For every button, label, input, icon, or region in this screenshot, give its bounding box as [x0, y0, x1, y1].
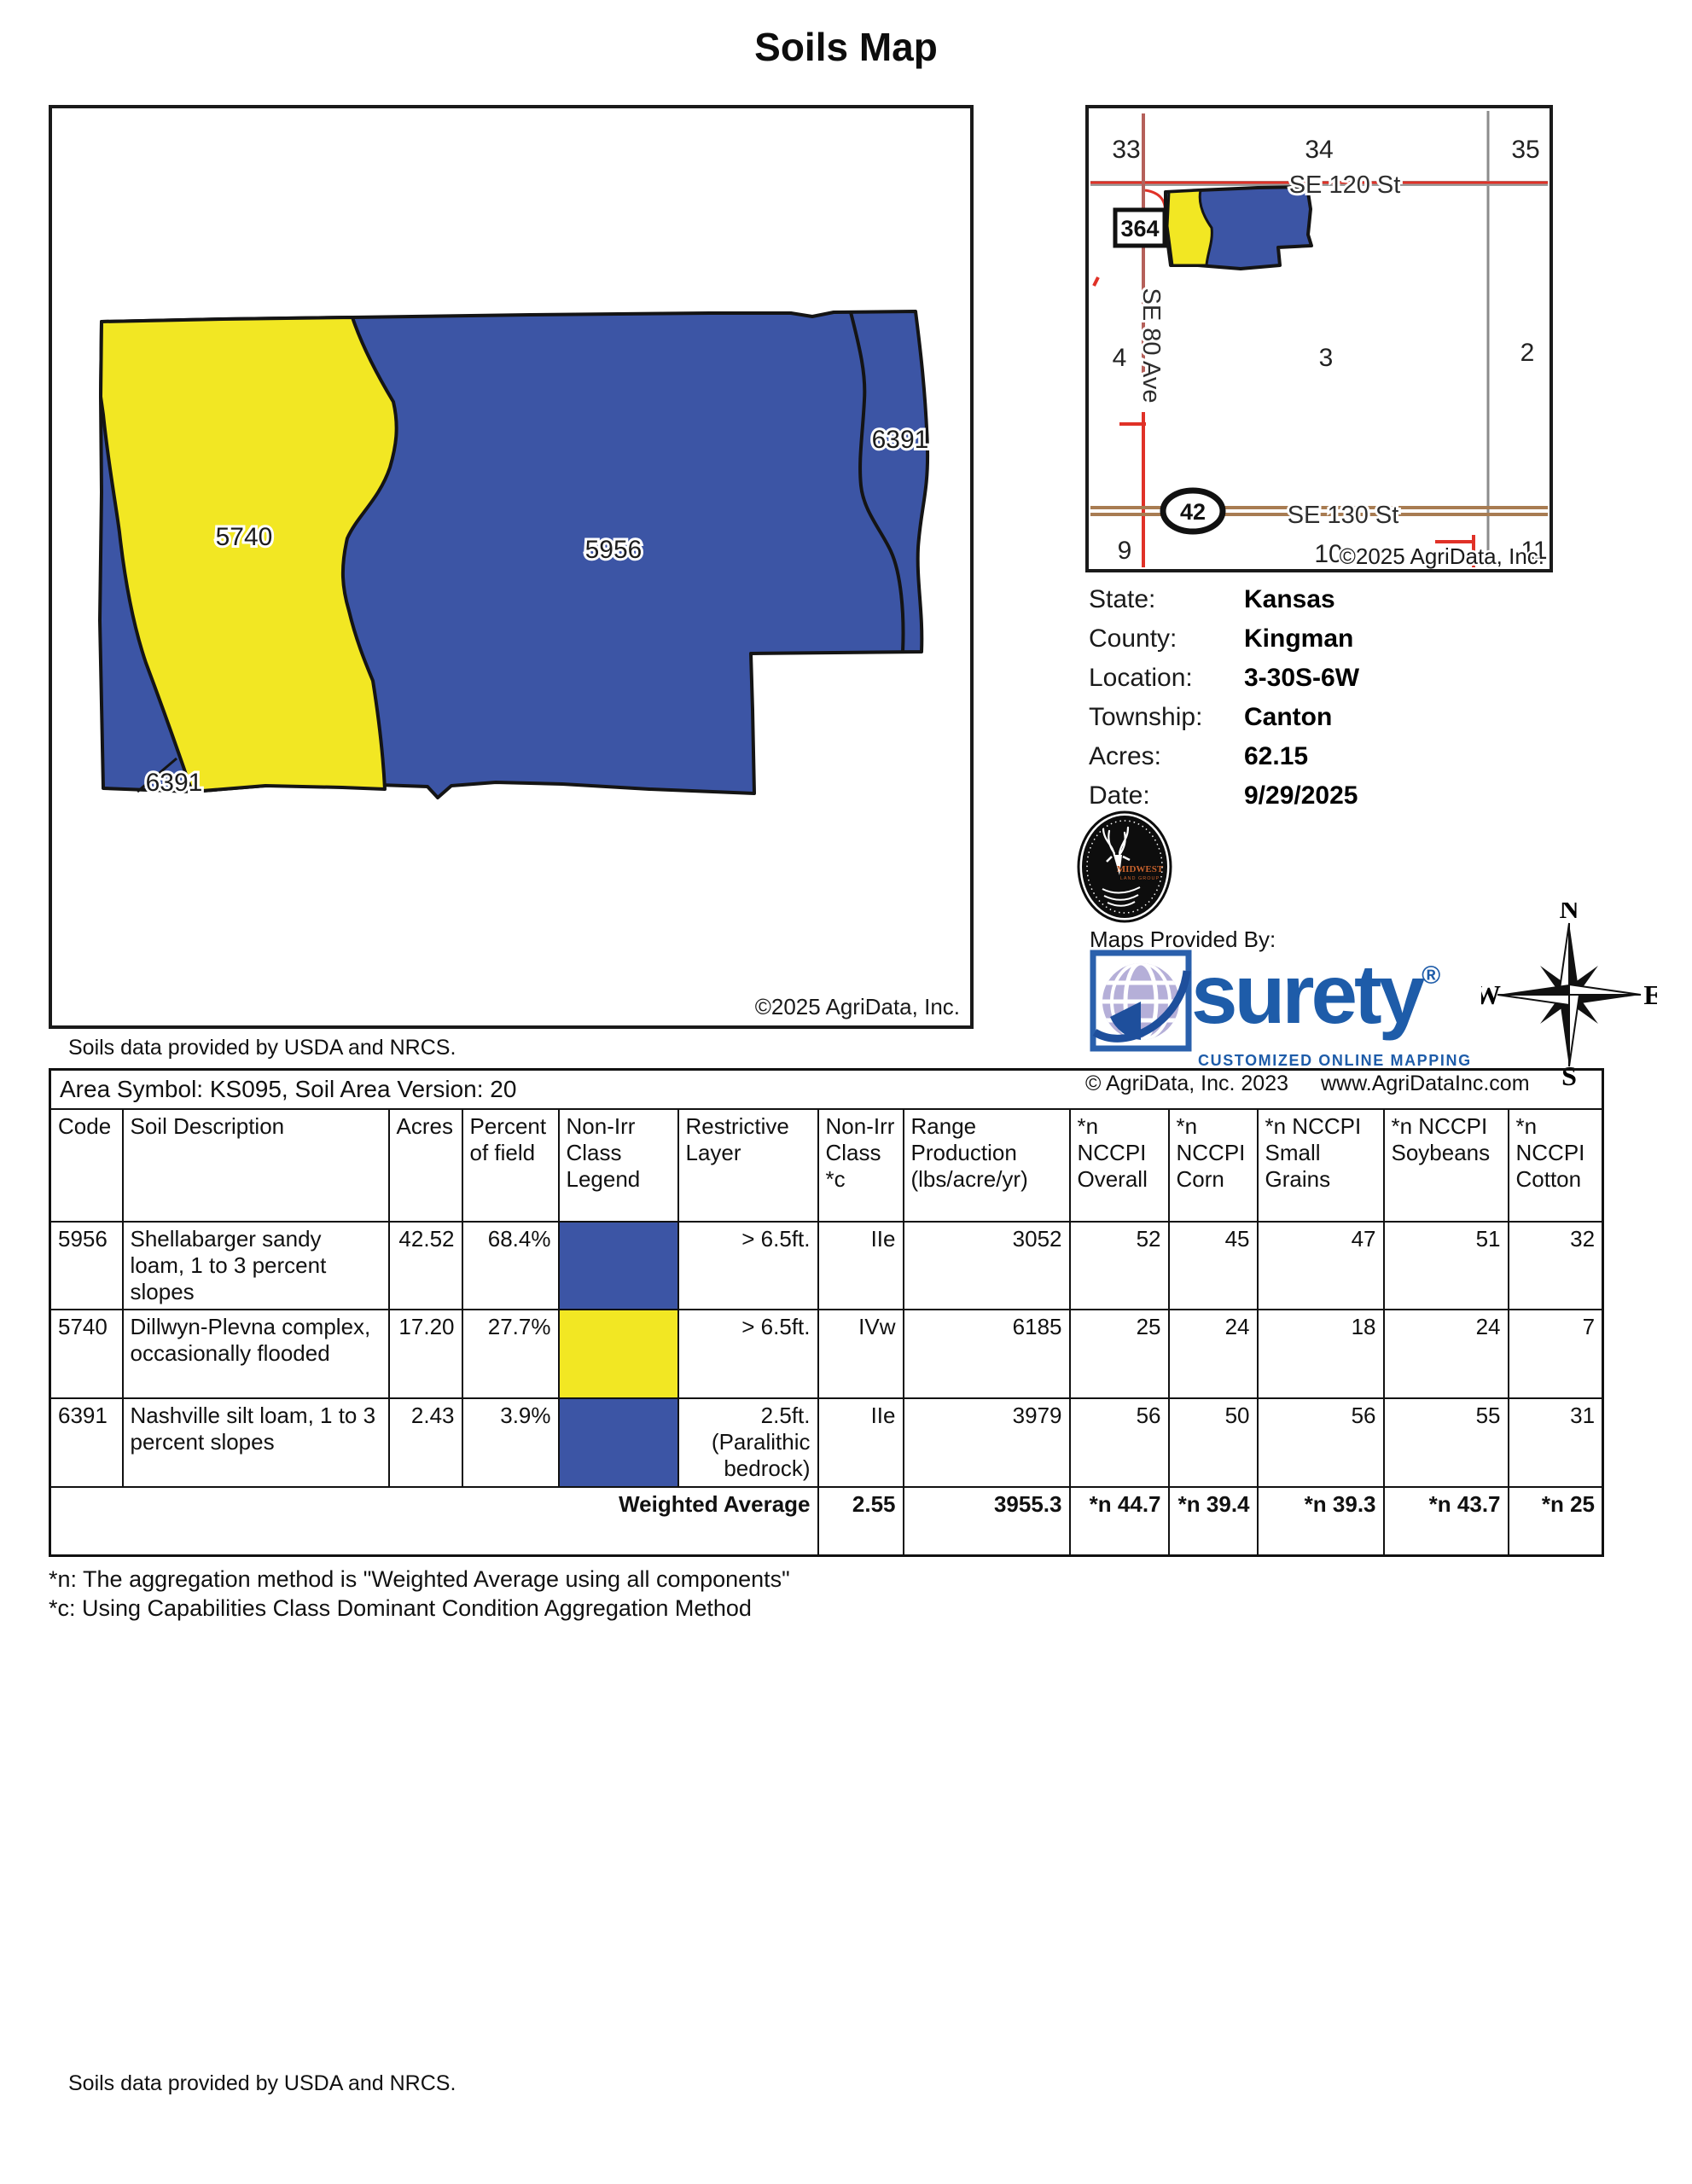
info-value: Kansas: [1244, 585, 1335, 624]
info-label: Acres:: [1089, 742, 1244, 781]
cell-nonirr-class: IIe: [818, 1398, 904, 1487]
area-symbol-header: Area Symbol: KS095, Soil Area Version: 2…: [50, 1070, 1603, 1110]
col-header-nccpi-cotton: *n NCCPI Cotton: [1509, 1109, 1603, 1222]
col-header-nccpi-overall: *n NCCPI Overall: [1070, 1109, 1169, 1222]
info-row-location: Location: 3-30S-6W: [1089, 664, 1550, 703]
info-label: County:: [1089, 624, 1244, 664]
cell-range-production: 3979: [904, 1398, 1070, 1487]
highway-364-label: 364: [1120, 216, 1159, 241]
main-map-copyright: ©2025 AgriData, Inc.: [755, 994, 960, 1019]
soil-data-table: Area Symbol: KS095, Soil Area Version: 2…: [49, 1068, 1602, 1557]
cell-description: Dillwyn-Plevna complex, occasionally flo…: [123, 1310, 389, 1398]
wa-nccpi-cotton: *n 25: [1509, 1487, 1603, 1555]
cell-nccpi-overall: 25: [1070, 1310, 1169, 1398]
info-row-county: County: Kingman: [1089, 624, 1550, 664]
footnote-c: *c: Using Capabilities Class Dominant Co…: [49, 1594, 790, 1623]
footnotes: *n: The aggregation method is "Weighted …: [49, 1565, 790, 1623]
cell-percent: 27.7%: [462, 1310, 559, 1398]
table-row: 5956 Shellabarger sandy loam, 1 to 3 per…: [50, 1222, 1603, 1310]
globe-icon: [1090, 949, 1192, 1053]
surety-logo-wordmark: surety®: [1191, 952, 1440, 1036]
cell-description: Nashville silt loam, 1 to 3 percent slop…: [123, 1398, 389, 1487]
section-2: 2: [1520, 339, 1535, 367]
info-value: Kingman: [1244, 624, 1353, 664]
compass-main-points: [1497, 923, 1641, 1066]
wa-range-production: 3955.3: [904, 1487, 1070, 1555]
parcel-info-block: State: Kansas County: Kingman Location: …: [1089, 585, 1550, 821]
info-value: Canton: [1244, 703, 1332, 742]
cell-nccpi-soybeans: 55: [1384, 1398, 1509, 1487]
compass-east: E: [1643, 979, 1657, 1010]
registered-mark: ®: [1422, 961, 1440, 990]
col-header-nccpi-soybeans: *n NCCPI Soybeans: [1384, 1109, 1509, 1222]
cell-nccpi-soybeans: 51: [1384, 1222, 1509, 1310]
inset-location-map: 364 42 33 34 35 4 3 2 9 10 11 SE 120 St …: [1085, 105, 1553, 572]
col-header-range-production: Range Production (lbs/acre/yr): [904, 1109, 1070, 1222]
cell-nccpi-corn: 24: [1169, 1310, 1258, 1398]
info-row-acres: Acres: 62.15: [1089, 742, 1550, 781]
table-row: 5740 Dillwyn-Plevna complex, occasionall…: [50, 1310, 1603, 1398]
cell-acres: 17.20: [389, 1310, 462, 1398]
midwest-logo-sub: LAND GROUP: [1120, 876, 1160, 881]
cell-nonirr-class: IVw: [818, 1310, 904, 1398]
soils-map-report-page: { "page": { "title": "Soils Map", "map_n…: [0, 0, 1692, 2184]
col-header-restrictive: Restrictive Layer: [678, 1109, 818, 1222]
legend-swatch: [559, 1310, 678, 1398]
midwest-land-group-logo: MIDWEST LAND GROUP: [1077, 810, 1172, 927]
table-area-header-row: Area Symbol: KS095, Soil Area Version: 2…: [50, 1070, 1603, 1110]
midwest-logo-name: MIDWEST: [1117, 864, 1164, 874]
legend-swatch: [559, 1398, 678, 1487]
cell-range-production: 6185: [904, 1310, 1070, 1398]
cell-range-production: 3052: [904, 1222, 1070, 1310]
deer-logo-icon: MIDWEST LAND GROUP: [1077, 810, 1172, 923]
road-red-mark-left: [1094, 277, 1098, 286]
soils-data-note: Soils data provided by USDA and NRCS.: [68, 1036, 456, 1060]
cell-description: Shellabarger sandy loam, 1 to 3 percent …: [123, 1222, 389, 1310]
soils-map-drawing: 5740 5956 6391 6391 ©2025 AgriData, Inc.: [52, 108, 970, 1025]
inset-map-copyright: ©2025 AgriData, Inc.: [1340, 543, 1544, 569]
info-label: Township:: [1089, 703, 1244, 742]
wa-nccpi-overall: *n 44.7: [1070, 1487, 1169, 1555]
cell-code: 5740: [50, 1310, 123, 1398]
cell-nccpi-small-grains: 56: [1258, 1398, 1384, 1487]
cell-nccpi-cotton: 7: [1509, 1310, 1603, 1398]
section-3: 3: [1319, 344, 1334, 372]
footnote-n: *n: The aggregation method is "Weighted …: [49, 1565, 790, 1594]
wa-nccpi-corn: *n 39.4: [1169, 1487, 1258, 1555]
cell-nccpi-small-grains: 18: [1258, 1310, 1384, 1398]
cell-nccpi-overall: 52: [1070, 1222, 1169, 1310]
cell-nonirr-class: IIe: [818, 1222, 904, 1310]
surety-tagline: CUSTOMIZED ONLINE MAPPING: [1198, 1052, 1472, 1070]
col-header-legend: Non-Irr Class Legend: [559, 1109, 678, 1222]
col-header-acres: Acres: [389, 1109, 462, 1222]
cell-nccpi-overall: 56: [1070, 1398, 1169, 1487]
compass-rose-icon: N E S W: [1481, 903, 1657, 1091]
info-value: 3-30S-6W: [1244, 664, 1359, 703]
cell-nccpi-cotton: 31: [1509, 1398, 1603, 1487]
cell-code: 5956: [50, 1222, 123, 1310]
road-label-se130: SE 130 St: [1288, 502, 1399, 529]
section-34: 34: [1305, 136, 1333, 164]
wa-nccpi-soybeans: *n 43.7: [1384, 1487, 1509, 1555]
compass-north: N: [1559, 903, 1579, 924]
table-row: 6391 Nashville silt loam, 1 to 3 percent…: [50, 1398, 1603, 1487]
cell-nccpi-soybeans: 24: [1384, 1310, 1509, 1398]
cell-nccpi-cotton: 32: [1509, 1222, 1603, 1310]
cell-restrictive: > 6.5ft.: [678, 1222, 818, 1310]
soil-table: Area Symbol: KS095, Soil Area Version: 2…: [49, 1068, 1604, 1557]
cell-nccpi-corn: 45: [1169, 1222, 1258, 1310]
legend-swatch: [559, 1222, 678, 1310]
road-label-se120: SE 120 St: [1289, 171, 1401, 199]
cell-nccpi-small-grains: 47: [1258, 1222, 1384, 1310]
cell-code: 6391: [50, 1398, 123, 1487]
highway-42-label: 42: [1180, 499, 1206, 525]
section-35: 35: [1511, 136, 1539, 164]
col-header-percent: Percent of field: [462, 1109, 559, 1222]
cell-acres: 2.43: [389, 1398, 462, 1487]
wa-nccpi-small-grains: *n 39.3: [1258, 1487, 1384, 1555]
compass-rose: N E S W: [1481, 903, 1657, 1087]
section-4: 4: [1113, 344, 1127, 372]
compass-west: W: [1481, 979, 1501, 1010]
map-label-6391-right: 6391: [872, 426, 929, 454]
map-label-6391-left: 6391: [146, 769, 203, 797]
cell-acres: 42.52: [389, 1222, 462, 1310]
surety-name: surety: [1191, 947, 1422, 1041]
wa-nonirr-class: 2.55: [818, 1487, 904, 1555]
weighted-average-row: Weighted Average 2.55 3955.3 *n 44.7 *n …: [50, 1487, 1603, 1555]
cell-restrictive: > 6.5ft.: [678, 1310, 818, 1398]
cell-percent: 3.9%: [462, 1398, 559, 1487]
info-label: Location:: [1089, 664, 1244, 703]
footer-soils-data-note: Soils data provided by USDA and NRCS.: [68, 2071, 456, 2096]
col-header-nccpi-corn: *n NCCPI Corn: [1169, 1109, 1258, 1222]
map-label-5740: 5740: [216, 523, 273, 551]
info-row-state: State: Kansas: [1089, 585, 1550, 624]
main-soils-map: 5740 5956 6391 6391 ©2025 AgriData, Inc.: [49, 105, 974, 1029]
col-header-nonirr-class: Non-Irr Class *c: [818, 1109, 904, 1222]
weighted-average-label: Weighted Average: [50, 1487, 818, 1555]
info-row-township: Township: Canton: [1089, 703, 1550, 742]
road-label-se80: SE 80 Ave: [1137, 288, 1165, 404]
section-9: 9: [1118, 537, 1132, 565]
info-label: State:: [1089, 585, 1244, 624]
cell-percent: 68.4%: [462, 1222, 559, 1310]
cell-restrictive: 2.5ft. (Paralithic bedrock): [678, 1398, 818, 1487]
section-33: 33: [1112, 136, 1140, 164]
map-label-5956: 5956: [585, 536, 642, 564]
surety-globe-icon: [1090, 949, 1192, 1057]
inset-map-drawing: 364 42 33 34 35 4 3 2 9 10 11 SE 120 St …: [1089, 108, 1550, 569]
info-value: 62.15: [1244, 742, 1308, 781]
section-10: 10: [1314, 540, 1342, 568]
cell-nccpi-corn: 50: [1169, 1398, 1258, 1487]
col-header-code: Code: [50, 1109, 123, 1222]
info-value: 9/29/2025: [1244, 781, 1358, 821]
page-title: Soils Map: [0, 24, 1692, 70]
col-header-nccpi-small-grains: *n NCCPI Small Grains: [1258, 1109, 1384, 1222]
table-column-header-row: Code Soil Description Acres Percent of f…: [50, 1109, 1603, 1222]
col-header-description: Soil Description: [123, 1109, 389, 1222]
